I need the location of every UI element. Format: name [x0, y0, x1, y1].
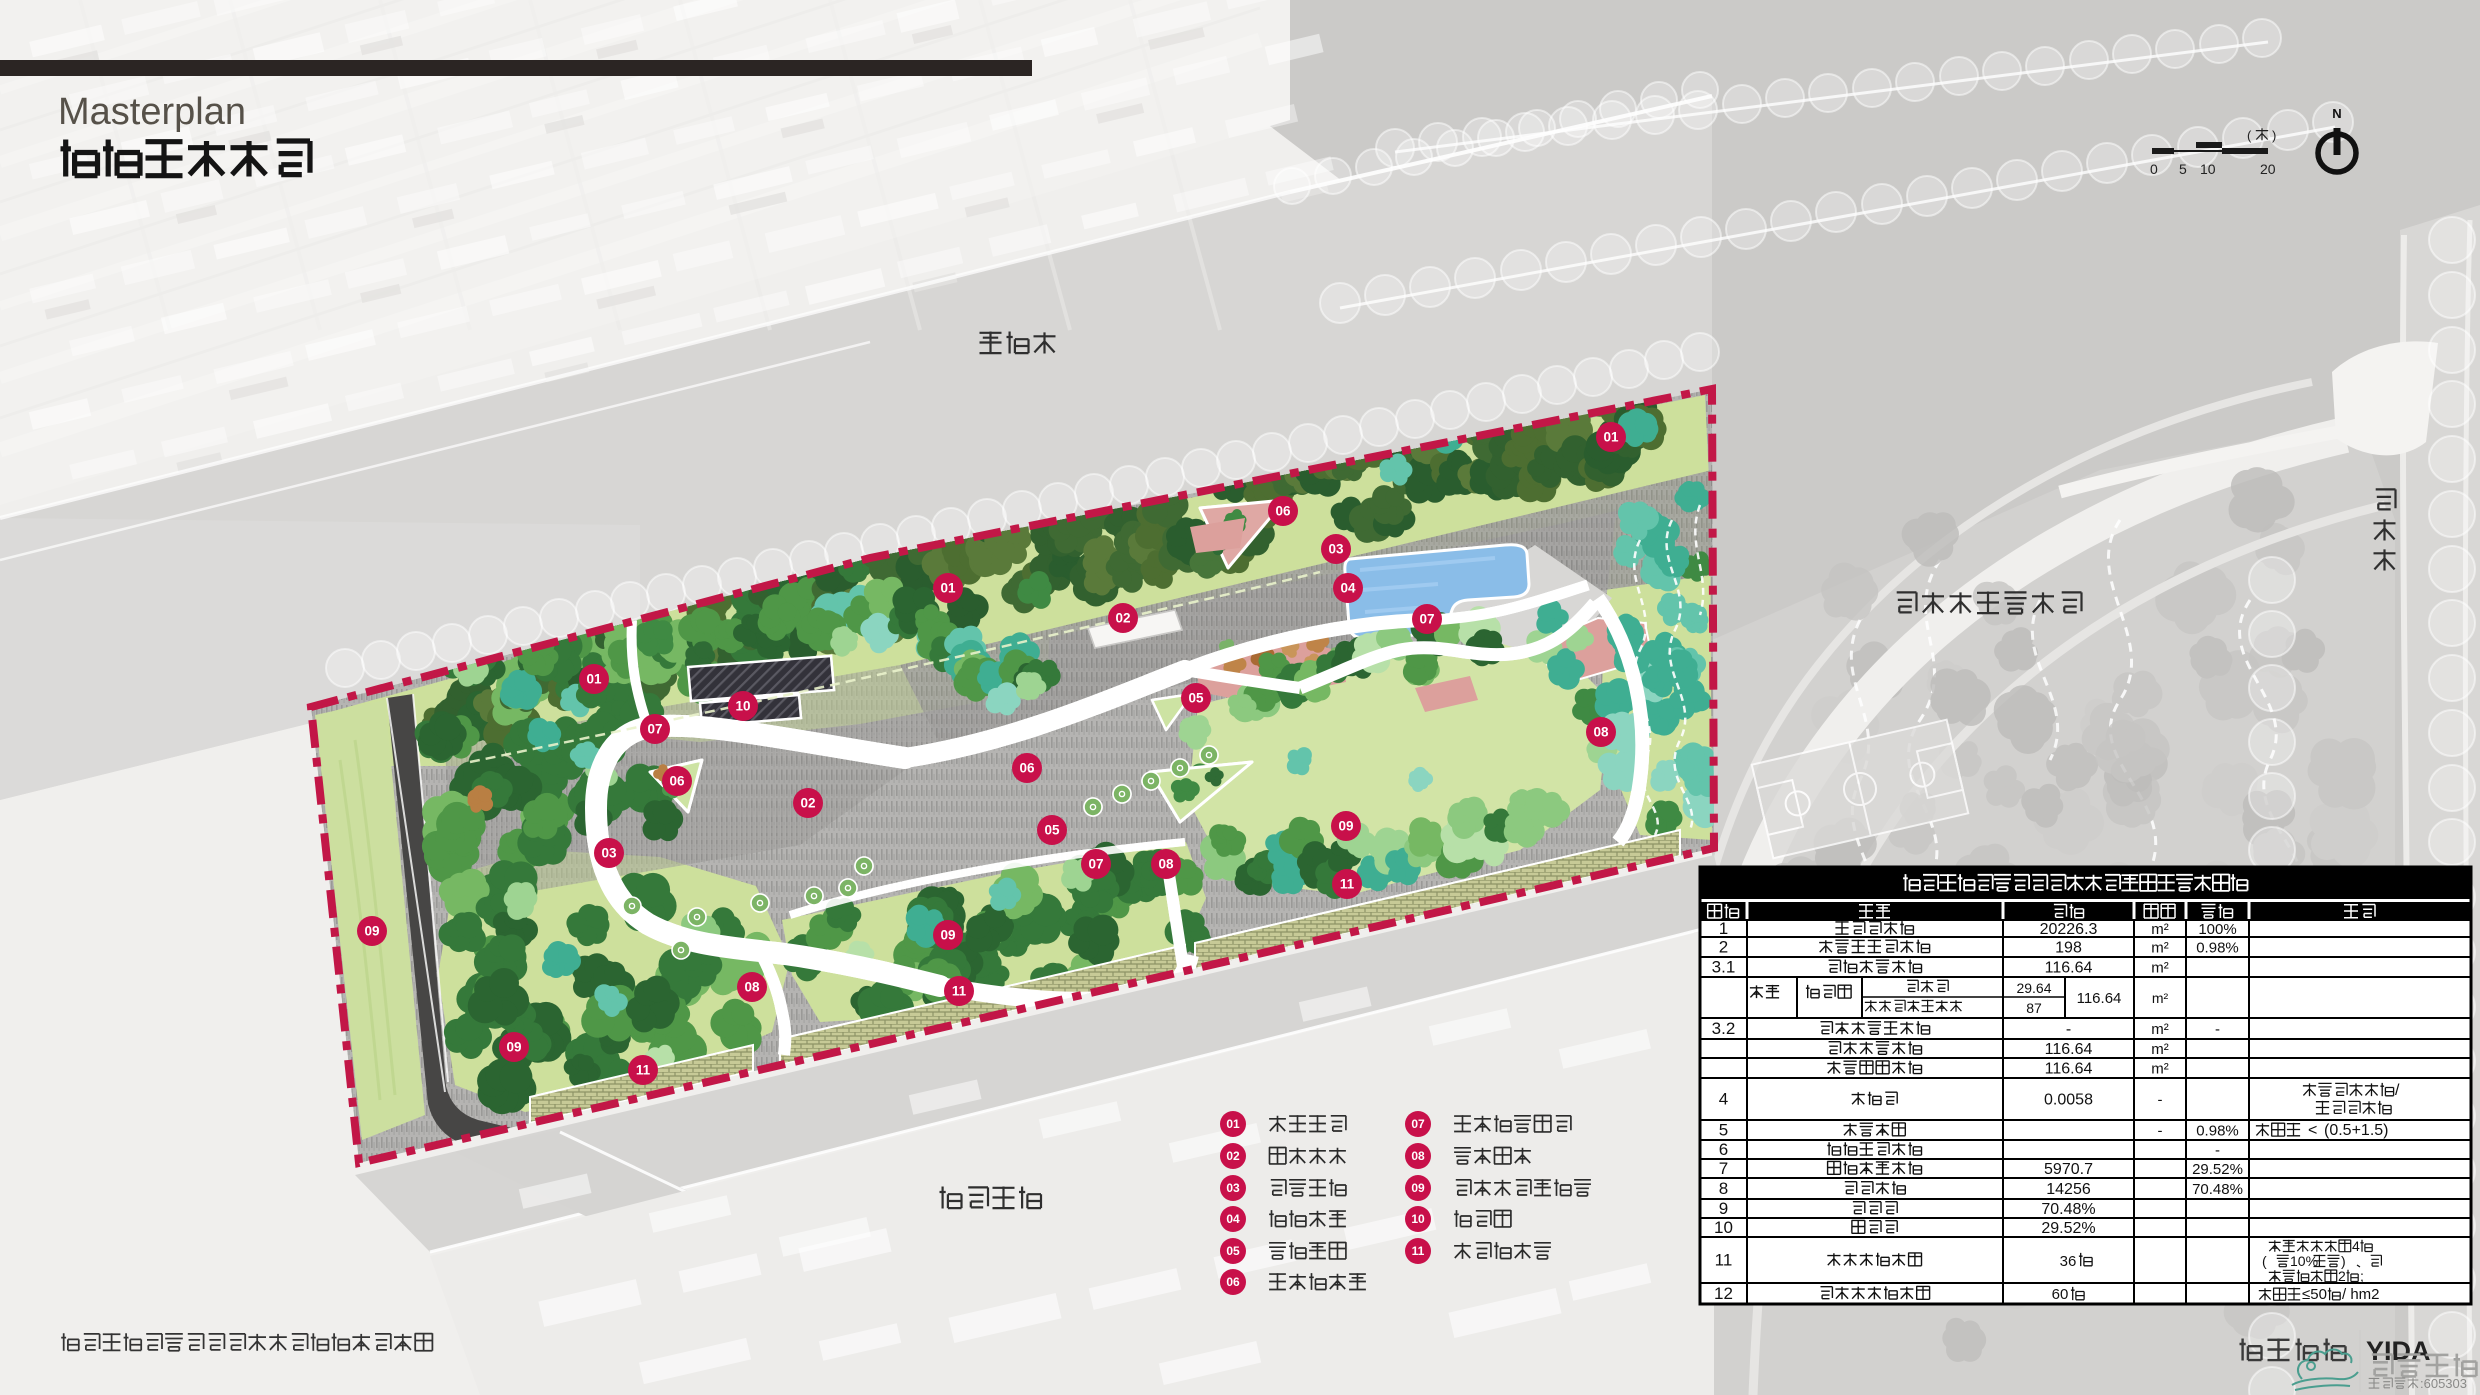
svg-text:;: ;	[2360, 1268, 2364, 1284]
svg-text:(: (	[2247, 128, 2252, 143]
svg-text:6: 6	[1719, 1140, 1728, 1159]
svg-text:05: 05	[1044, 823, 1060, 838]
svg-text:116.64: 116.64	[2045, 1061, 2093, 1078]
svg-text:70.48%: 70.48%	[2041, 1201, 2095, 1218]
svg-text:m²: m²	[2152, 990, 2169, 1006]
svg-text:87: 87	[2026, 1000, 2042, 1016]
svg-text:14256: 14256	[2046, 1181, 2091, 1198]
svg-text:29.52%: 29.52%	[2041, 1220, 2095, 1237]
svg-text:09: 09	[940, 928, 955, 943]
svg-text:03: 03	[601, 846, 617, 861]
svg-text:4: 4	[2352, 1238, 2360, 1254]
svg-text:10: 10	[735, 699, 750, 714]
svg-text:-: -	[2066, 1021, 2071, 1038]
svg-text:01: 01	[1226, 1117, 1240, 1131]
svg-text:-: -	[2158, 1123, 2163, 1140]
svg-text:07: 07	[1419, 612, 1434, 627]
svg-text:-: -	[2215, 1142, 2220, 1159]
svg-text:0.0058: 0.0058	[2044, 1092, 2093, 1109]
svg-text:29.52%: 29.52%	[2192, 1161, 2243, 1178]
svg-text:06: 06	[1019, 761, 1035, 776]
svg-text:11: 11	[1715, 1251, 1733, 1270]
svg-text:m²: m²	[2151, 960, 2169, 977]
svg-text:5: 5	[2179, 161, 2187, 177]
svg-text:08: 08	[1158, 857, 1174, 872]
svg-text:02: 02	[800, 796, 815, 811]
svg-text:02: 02	[1115, 611, 1130, 626]
svg-text:10: 10	[1714, 1218, 1733, 1237]
svg-text:03: 03	[1328, 542, 1344, 557]
svg-text:0.98%: 0.98%	[2196, 1123, 2239, 1140]
svg-text:9: 9	[1719, 1199, 1728, 1218]
svg-text:09: 09	[364, 924, 379, 939]
svg-text:-: -	[2215, 1021, 2220, 1038]
svg-text:08: 08	[1593, 725, 1609, 740]
svg-text:60: 60	[2052, 1286, 2069, 1303]
svg-text:70.48%: 70.48%	[2192, 1181, 2243, 1198]
svg-text:0.98%: 0.98%	[2196, 940, 2239, 957]
svg-text:5970.7: 5970.7	[2044, 1161, 2093, 1178]
svg-text:08: 08	[1411, 1149, 1425, 1163]
svg-text:): )	[2272, 128, 2276, 143]
svg-text:01: 01	[940, 581, 956, 596]
svg-text:198: 198	[2055, 940, 2082, 957]
svg-text:20: 20	[2260, 161, 2276, 177]
svg-text:05: 05	[1188, 691, 1204, 706]
svg-text:7: 7	[1719, 1159, 1728, 1178]
svg-text:11: 11	[1412, 1244, 1425, 1258]
svg-text:02: 02	[1226, 1149, 1240, 1163]
svg-text:Masterplan: Masterplan	[58, 91, 246, 133]
svg-text:2: 2	[2338, 1268, 2346, 1284]
svg-text:04: 04	[1340, 581, 1356, 596]
svg-text:/ hm2: / hm2	[2342, 1286, 2380, 1303]
svg-text:8: 8	[1719, 1179, 1728, 1198]
svg-text:06: 06	[669, 774, 685, 789]
svg-text:m²: m²	[2151, 940, 2169, 957]
svg-text:05: 05	[1226, 1244, 1240, 1258]
svg-text:m²: m²	[2151, 1041, 2169, 1058]
svg-text:08: 08	[744, 980, 760, 995]
svg-text:(: (	[2262, 1253, 2267, 1269]
svg-text:m²: m²	[2151, 1061, 2169, 1078]
svg-text:4: 4	[1719, 1090, 1728, 1109]
svg-text:10: 10	[1411, 1212, 1425, 1226]
svg-text:09: 09	[1411, 1181, 1425, 1195]
svg-text:m²: m²	[2151, 921, 2169, 938]
svg-text:(0.5+1.5): (0.5+1.5)	[2324, 1122, 2388, 1139]
svg-text:01: 01	[586, 672, 602, 687]
svg-text:3.2: 3.2	[1712, 1019, 1736, 1038]
svg-text:11: 11	[952, 984, 967, 999]
svg-text:20226.3: 20226.3	[2040, 921, 2098, 938]
svg-text:): )	[2341, 1253, 2346, 1269]
svg-text:1: 1	[1719, 919, 1728, 938]
svg-text:m²: m²	[2151, 1021, 2169, 1038]
svg-text:01: 01	[1603, 430, 1619, 445]
svg-text:116.64: 116.64	[2077, 990, 2122, 1007]
svg-text:5: 5	[1719, 1121, 1728, 1140]
svg-text:12: 12	[1714, 1284, 1733, 1303]
svg-text:/: /	[2395, 1082, 2400, 1099]
svg-text:2: 2	[1719, 938, 1728, 957]
svg-text:03: 03	[1226, 1181, 1240, 1195]
svg-text:06: 06	[1275, 504, 1291, 519]
svg-text:116.64: 116.64	[2045, 960, 2093, 977]
svg-text:0: 0	[2150, 161, 2158, 177]
svg-text:10: 10	[2200, 161, 2216, 177]
svg-text:04: 04	[1226, 1212, 1240, 1226]
svg-text:36: 36	[2060, 1253, 2077, 1270]
svg-text:116.64: 116.64	[2045, 1041, 2093, 1058]
svg-text:09: 09	[1338, 819, 1353, 834]
svg-text:06: 06	[1226, 1275, 1240, 1289]
svg-text::605303: :605303	[2420, 1376, 2467, 1391]
svg-text:09: 09	[506, 1040, 521, 1055]
svg-text:-: -	[2158, 1092, 2163, 1109]
svg-text:11: 11	[1340, 877, 1355, 892]
svg-text:N: N	[2332, 106, 2341, 121]
svg-text:07: 07	[1411, 1117, 1425, 1131]
svg-text:<: <	[2308, 1122, 2317, 1139]
svg-text:07: 07	[647, 722, 662, 737]
svg-text:07: 07	[1088, 857, 1103, 872]
svg-text:11: 11	[636, 1063, 651, 1078]
svg-text:29.64: 29.64	[2016, 980, 2051, 996]
svg-text:100%: 100%	[2198, 921, 2236, 938]
svg-text:10%: 10%	[2290, 1253, 2318, 1269]
svg-text:3.1: 3.1	[1712, 958, 1736, 977]
svg-text:≤50: ≤50	[2302, 1286, 2327, 1303]
